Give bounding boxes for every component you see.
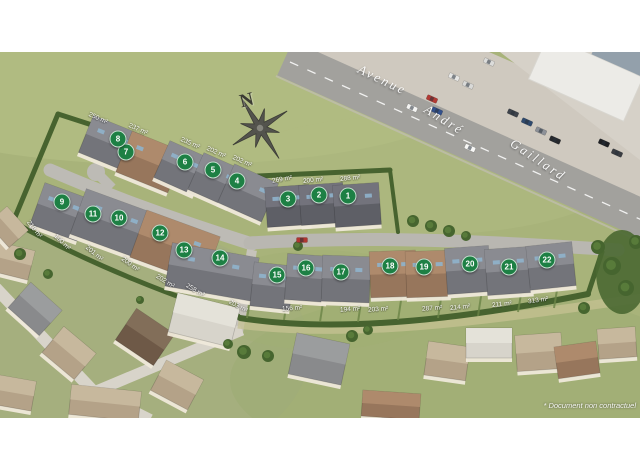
lot-area-label: 200 m² — [120, 256, 140, 274]
lot-marker-9[interactable]: 9 — [54, 194, 71, 211]
lot-area-label: 203 m² — [228, 299, 249, 315]
lot-number: 15 — [273, 271, 282, 279]
lot-marker-18[interactable]: 18 — [382, 258, 399, 275]
lot-area-label: 201 m² — [84, 244, 104, 262]
lot-marker-8[interactable]: 8 — [110, 131, 127, 148]
lot-number: 6 — [183, 158, 187, 166]
disclaimer-text: * Document non contractuel — [498, 401, 636, 410]
lot-number: 13 — [180, 246, 189, 254]
lot-marker-22[interactable]: 22 — [539, 252, 556, 269]
lot-area-label: 269 m² — [272, 174, 293, 184]
lot-area-label: 194 m² — [340, 305, 361, 313]
lot-area-label: 218 m² — [25, 219, 43, 239]
lot-number: 18 — [386, 262, 395, 270]
street-name: André — [421, 101, 467, 138]
lot-marker-14[interactable]: 14 — [212, 250, 229, 267]
lot-number: 17 — [337, 268, 346, 276]
lot-number: 14 — [216, 254, 225, 262]
lot-marker-16[interactable]: 16 — [298, 260, 315, 277]
lot-marker-15[interactable]: 15 — [269, 267, 286, 284]
lot-area-label: 250 m² — [87, 111, 108, 126]
lot-area-label: 237 m² — [127, 122, 148, 137]
street-name: Avenue — [355, 61, 409, 98]
aerial-render-band: N AvenueAndréGaillard1288 m²2200 m²3269 … — [0, 52, 640, 418]
lot-marker-2[interactable]: 2 — [311, 187, 328, 204]
lot-area-label: 235 m² — [179, 136, 200, 151]
lot-number: 20 — [466, 260, 475, 268]
street-name: Gaillard — [507, 135, 569, 184]
lot-area-label: 156 m² — [282, 304, 303, 312]
lot-number: 16 — [302, 264, 311, 272]
labels-overlay: N AvenueAndréGaillard1288 m²2200 m²3269 … — [0, 52, 640, 418]
lot-number: 8 — [116, 135, 120, 143]
lot-marker-5[interactable]: 5 — [205, 162, 222, 179]
lot-area-label: 203 m² — [368, 305, 389, 313]
lot-marker-17[interactable]: 17 — [333, 264, 350, 281]
lot-area-label: 202 m² — [155, 273, 176, 290]
lot-marker-12[interactable]: 12 — [152, 225, 169, 242]
lot-number: 19 — [420, 263, 429, 271]
lot-number: 21 — [505, 263, 514, 271]
lot-marker-4[interactable]: 4 — [229, 173, 246, 190]
lot-number: 5 — [211, 166, 215, 174]
site-plan-image: N AvenueAndréGaillard1288 m²2200 m²3269 … — [0, 0, 640, 470]
lot-area-label: 313 m² — [528, 296, 549, 306]
aerial-world: N AvenueAndréGaillard1288 m²2200 m²3269 … — [0, 52, 640, 418]
lot-marker-11[interactable]: 11 — [85, 206, 102, 223]
lot-marker-6[interactable]: 6 — [177, 154, 194, 171]
lot-marker-10[interactable]: 10 — [111, 210, 128, 227]
lot-marker-20[interactable]: 20 — [462, 256, 479, 273]
lot-area-label: 211 m² — [492, 300, 512, 309]
lot-number: 7 — [124, 148, 128, 156]
lot-number: 2 — [317, 191, 321, 199]
lot-marker-13[interactable]: 13 — [176, 242, 193, 259]
lot-number: 1 — [346, 192, 350, 200]
lot-marker-1[interactable]: 1 — [340, 188, 357, 205]
lot-marker-21[interactable]: 21 — [501, 259, 518, 276]
lot-number: 4 — [235, 177, 239, 185]
lot-area-label: 202 m² — [231, 154, 252, 169]
lot-marker-19[interactable]: 19 — [416, 259, 433, 276]
lot-area-label: 258 m² — [185, 282, 206, 298]
lot-area-label: 214 m² — [450, 303, 471, 312]
lot-number: 11 — [89, 210, 97, 218]
lot-marker-3[interactable]: 3 — [280, 191, 297, 208]
lot-area-label: 190 m² — [52, 233, 71, 252]
compass-north-label: N — [238, 89, 257, 114]
lot-area-label: 200 m² — [303, 176, 324, 185]
lot-area-label: 202 m² — [205, 145, 226, 160]
lot-area-label: 287 m² — [422, 304, 443, 312]
lot-number: 12 — [156, 229, 165, 237]
lot-number: 10 — [115, 214, 124, 222]
lot-number: 3 — [286, 195, 290, 203]
lot-number: 22 — [543, 256, 552, 264]
lot-number: 9 — [60, 198, 64, 206]
lot-area-label: 288 m² — [340, 174, 361, 183]
